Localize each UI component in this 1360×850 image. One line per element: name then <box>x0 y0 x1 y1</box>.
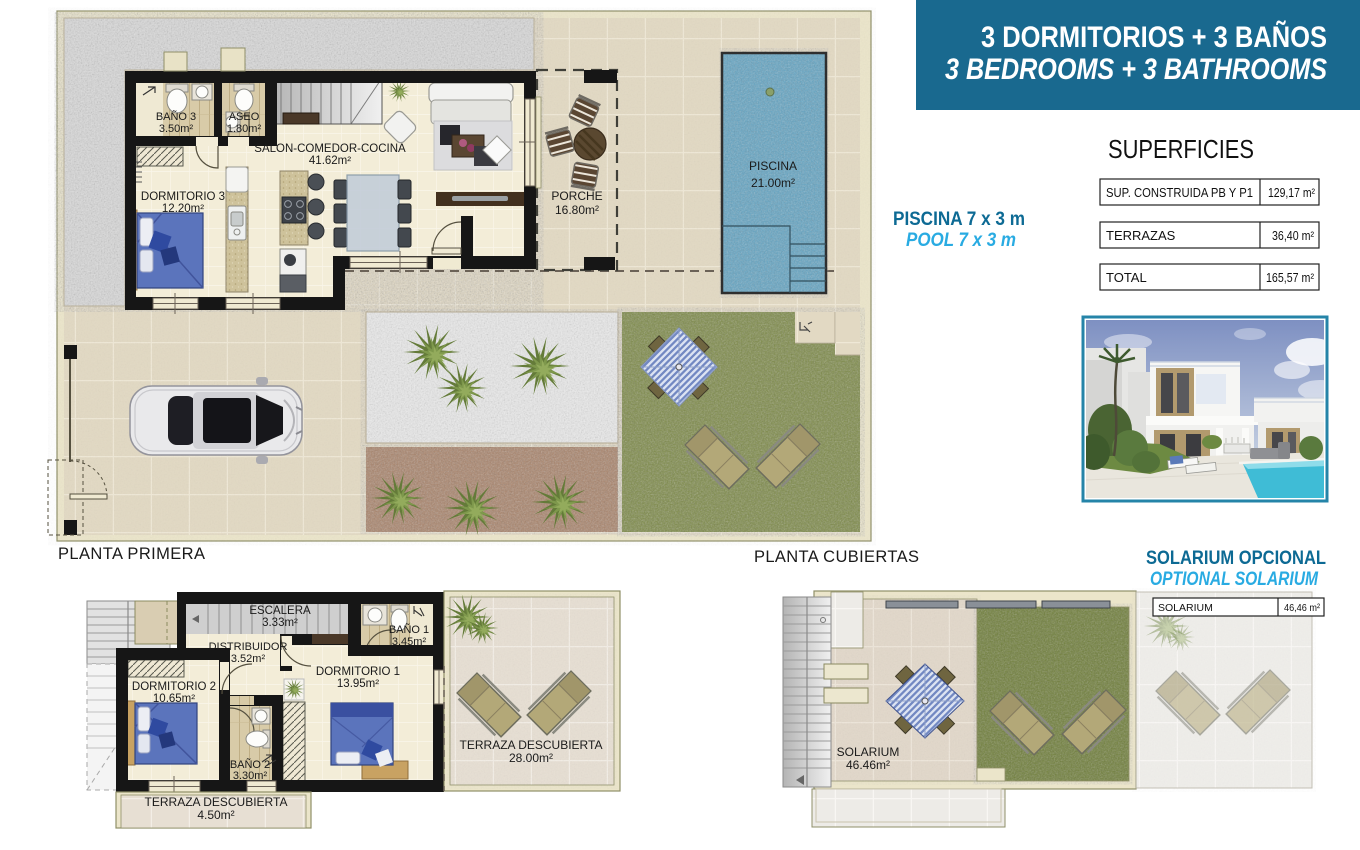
svg-text:3.50m²: 3.50m² <box>159 123 194 135</box>
svg-text:41.62m²: 41.62m² <box>309 155 351 167</box>
svg-text:BAÑO 3: BAÑO 3 <box>156 110 196 123</box>
svg-text:3 DORMITORIOS + 3 BAÑOS: 3 DORMITORIOS + 3 BAÑOS <box>981 20 1327 54</box>
svg-text:3.45m²: 3.45m² <box>392 636 427 648</box>
svg-text:SOLARIUM: SOLARIUM <box>1158 602 1213 614</box>
svg-text:PLANTA PRIMERA: PLANTA PRIMERA <box>58 545 205 563</box>
svg-text:PLANTA CUBIERTAS: PLANTA CUBIERTAS <box>754 548 919 566</box>
svg-text:PISCINA: PISCINA <box>749 159 797 173</box>
svg-text:DORMITORIO 1: DORMITORIO 1 <box>316 666 400 678</box>
svg-text:TOTAL: TOTAL <box>1106 270 1147 285</box>
svg-text:46.46m²: 46.46m² <box>846 758 890 772</box>
svg-text:3.33m²: 3.33m² <box>262 617 298 629</box>
svg-text:DORMITORIO 2: DORMITORIO 2 <box>132 681 216 693</box>
svg-text:4.50m²: 4.50m² <box>197 808 234 822</box>
svg-text:BAÑO 1: BAÑO 1 <box>389 623 429 636</box>
svg-text:PISCINA 7 x 3 m: PISCINA 7 x 3 m <box>893 209 1025 230</box>
svg-text:SOLARIUM: SOLARIUM <box>837 745 900 759</box>
svg-text:SUPERFICIES: SUPERFICIES <box>1108 134 1254 164</box>
svg-text:12.20m²: 12.20m² <box>162 203 204 215</box>
svg-text:3 BEDROOMS + 3 BATHROOMS: 3 BEDROOMS + 3 BATHROOMS <box>945 53 1327 86</box>
svg-text:PORCHE: PORCHE <box>551 189 602 203</box>
svg-text:28.00m²: 28.00m² <box>509 751 553 765</box>
svg-text:ASEO: ASEO <box>229 111 260 123</box>
svg-text:TERRAZA DESCUBIERTA: TERRAZA DESCUBIERTA <box>145 795 288 809</box>
svg-text:DISTRIBUIDOR: DISTRIBUIDOR <box>209 641 288 653</box>
svg-text:46,46 m²: 46,46 m² <box>1284 602 1320 614</box>
svg-text:TERRAZAS: TERRAZAS <box>1106 228 1176 243</box>
svg-text:3.30m²: 3.30m² <box>233 770 268 782</box>
svg-text:21.00m²: 21.00m² <box>751 176 795 190</box>
svg-text:SUP. CONSTRUIDA PB Y P1: SUP. CONSTRUIDA PB Y P1 <box>1106 185 1253 200</box>
svg-text:DORMITORIO 3: DORMITORIO 3 <box>141 191 225 203</box>
svg-text:SOLARIUM OPCIONAL: SOLARIUM OPCIONAL <box>1146 547 1326 569</box>
svg-text:1.80m²: 1.80m² <box>227 123 262 135</box>
svg-text:ESCALERA: ESCALERA <box>249 605 311 617</box>
svg-text:13.95m²: 13.95m² <box>337 678 379 690</box>
svg-text:36,40 m²: 36,40 m² <box>1272 228 1315 243</box>
svg-text:16.80m²: 16.80m² <box>555 203 599 217</box>
svg-text:POOL 7 x 3 m: POOL 7 x 3 m <box>906 230 1016 251</box>
svg-text:TERRAZA DESCUBIERTA: TERRAZA DESCUBIERTA <box>460 738 603 752</box>
svg-text:129,17 m²: 129,17 m² <box>1268 185 1316 200</box>
svg-text:3.52m²: 3.52m² <box>231 653 266 665</box>
svg-text:SALON-COMEDOR-COCINA: SALON-COMEDOR-COCINA <box>254 143 406 155</box>
svg-text:OPTIONAL SOLARIUM: OPTIONAL SOLARIUM <box>1150 568 1319 590</box>
svg-text:165,57 m²: 165,57 m² <box>1266 270 1315 285</box>
svg-text:10.65m²: 10.65m² <box>153 693 195 705</box>
